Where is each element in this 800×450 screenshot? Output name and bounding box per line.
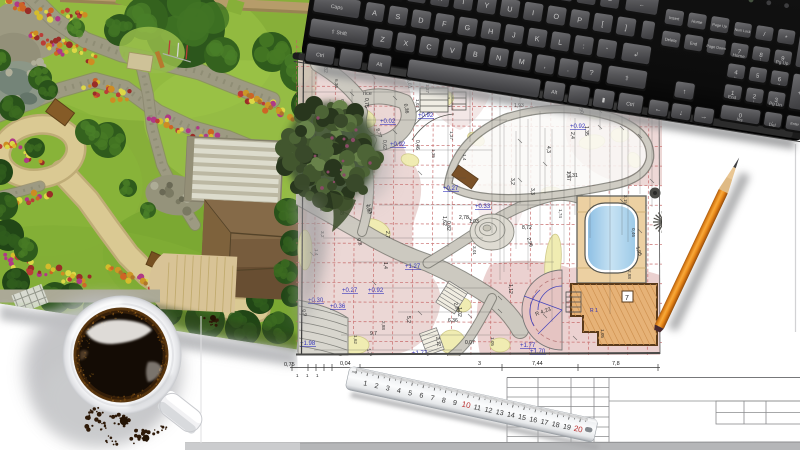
svg-text:0,46: 0,46 (631, 228, 636, 237)
svg-text:Ctrl: Ctrl (626, 101, 635, 108)
svg-text:0,75: 0,75 (284, 362, 295, 368)
svg-text:7,8: 7,8 (612, 361, 620, 367)
svg-text:0,04: 0,04 (340, 361, 351, 367)
svg-text:1,35: 1,35 (431, 149, 436, 158)
svg-text:+0.92: +0.92 (570, 124, 586, 130)
svg-text:2,4: 2,4 (569, 132, 575, 139)
svg-text:7,44: 7,44 (532, 361, 543, 367)
svg-text:1,12: 1,12 (507, 284, 513, 294)
svg-text:→: → (700, 113, 708, 121)
svg-text:9,7: 9,7 (370, 331, 377, 337)
svg-text:0,07: 0,07 (465, 340, 475, 346)
svg-text:2,7: 2,7 (384, 231, 390, 238)
svg-text:3,3: 3,3 (529, 188, 535, 195)
svg-text:1,37: 1,37 (449, 131, 454, 140)
svg-text:6,36: 6,36 (448, 318, 458, 324)
svg-text:1,74: 1,74 (558, 209, 563, 218)
svg-text:→: → (776, 81, 781, 87)
svg-text:3,01: 3,01 (472, 246, 477, 255)
svg-text:5,2: 5,2 (405, 316, 411, 323)
svg-text:7: 7 (625, 295, 629, 302)
svg-text:←: ← (654, 106, 662, 114)
svg-text:1,05: 1,05 (600, 329, 605, 338)
svg-text:+0.02: +0.02 (380, 119, 396, 125)
svg-text:Ctrl: Ctrl (316, 52, 325, 59)
svg-text:0,82: 0,82 (445, 221, 451, 231)
svg-text:1,05: 1,05 (490, 337, 495, 346)
svg-text:3,15: 3,15 (623, 195, 628, 204)
svg-text:←: ← (733, 74, 738, 80)
svg-text:0,75: 0,75 (363, 98, 369, 108)
svg-text:+0.92: +0.92 (390, 142, 406, 148)
svg-text:1,02: 1,02 (415, 99, 420, 108)
svg-text:rice: rice (363, 91, 372, 97)
svg-text:1,03: 1,03 (469, 219, 479, 225)
svg-text:←: ← (639, 2, 645, 9)
svg-text:Del: Del (768, 122, 776, 128)
svg-text:3,2: 3,2 (509, 178, 515, 185)
svg-text:8,72: 8,72 (522, 225, 532, 231)
svg-text:2,78: 2,78 (459, 215, 469, 221)
svg-text:2,31: 2,31 (568, 173, 578, 179)
svg-text:2,88: 2,88 (381, 321, 386, 330)
svg-text:3: 3 (478, 361, 481, 367)
svg-text:+0.36: +0.36 (330, 304, 346, 310)
svg-text:1,4: 1,4 (382, 262, 388, 269)
svg-text:R 1: R 1 (590, 308, 598, 314)
svg-text:4,3: 4,3 (545, 146, 551, 153)
svg-text:+0.27: +0.27 (342, 288, 358, 294)
svg-text:2,88: 2,88 (627, 270, 632, 279)
svg-text:+0.92: +0.92 (368, 288, 384, 294)
svg-text:0,46: 0,46 (414, 140, 420, 150)
svg-text:+0.27: +0.27 (443, 186, 459, 192)
svg-text:+0.33: +0.33 (475, 204, 491, 210)
svg-text:6,36: 6,36 (334, 79, 339, 88)
svg-text:+1.27: +1.27 (405, 264, 421, 270)
svg-text:+1.98: +1.98 (300, 341, 316, 347)
svg-text:1,62: 1,62 (353, 335, 358, 344)
svg-text:+0.92: +0.92 (418, 113, 434, 119)
svg-text:1,4: 1,4 (462, 154, 467, 161)
